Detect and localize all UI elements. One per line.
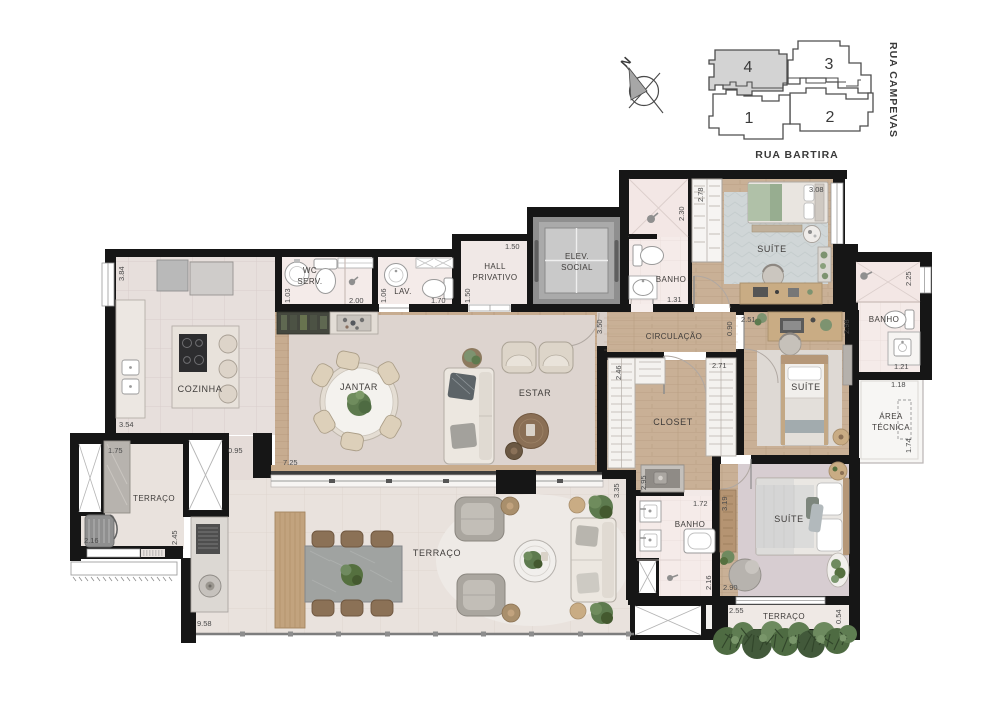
svg-text:2.95: 2.95 xyxy=(639,475,648,490)
svg-text:1.74: 1.74 xyxy=(904,438,913,453)
svg-text:SUÍTE: SUÍTE xyxy=(791,382,821,392)
svg-text:TERRAÇO: TERRAÇO xyxy=(413,548,461,558)
svg-text:RUA CAMPEVAS: RUA CAMPEVAS xyxy=(887,42,899,138)
svg-text:1.06: 1.06 xyxy=(379,288,388,303)
svg-text:2.71: 2.71 xyxy=(712,361,727,370)
svg-text:3.19: 3.19 xyxy=(720,496,729,511)
svg-text:2: 2 xyxy=(826,109,835,126)
svg-text:4: 4 xyxy=(744,59,753,76)
svg-text:3: 3 xyxy=(825,56,834,73)
svg-text:0.90: 0.90 xyxy=(725,321,734,336)
svg-text:2.90: 2.90 xyxy=(723,583,738,592)
svg-text:3.84: 3.84 xyxy=(117,266,126,281)
svg-text:ÁREA: ÁREA xyxy=(879,412,903,421)
svg-text:0.95: 0.95 xyxy=(228,446,243,455)
svg-text:2.45: 2.45 xyxy=(170,530,179,545)
svg-text:CIRCULAÇÃO: CIRCULAÇÃO xyxy=(646,332,702,341)
svg-text:HALL: HALL xyxy=(484,262,506,271)
svg-text:CLOSET: CLOSET xyxy=(653,417,693,427)
svg-text:0.54: 0.54 xyxy=(834,609,843,624)
svg-text:2.98: 2.98 xyxy=(842,319,851,334)
svg-text:SERV.: SERV. xyxy=(297,277,322,286)
svg-text:1.75: 1.75 xyxy=(108,446,123,455)
svg-text:2.16: 2.16 xyxy=(84,536,99,545)
svg-text:SUÍTE: SUÍTE xyxy=(774,514,804,524)
svg-text:1: 1 xyxy=(745,110,754,127)
svg-text:2.25: 2.25 xyxy=(904,271,913,286)
svg-text:2.78: 2.78 xyxy=(696,187,705,202)
svg-text:1.72: 1.72 xyxy=(693,499,708,508)
svg-text:JANTAR: JANTAR xyxy=(340,382,378,392)
svg-text:1.03: 1.03 xyxy=(283,288,292,303)
svg-text:2.46: 2.46 xyxy=(614,365,623,380)
svg-text:1.70: 1.70 xyxy=(431,296,446,305)
svg-text:2.16: 2.16 xyxy=(704,575,713,590)
svg-text:2.00: 2.00 xyxy=(349,296,364,305)
svg-text:TÉCNICA: TÉCNICA xyxy=(872,423,910,432)
svg-text:3.54: 3.54 xyxy=(119,420,134,429)
svg-text:ELEV.: ELEV. xyxy=(565,252,589,261)
svg-text:9.58: 9.58 xyxy=(197,619,212,628)
svg-text:TERRAÇO: TERRAÇO xyxy=(133,494,175,503)
svg-text:TERRAÇO: TERRAÇO xyxy=(763,612,805,621)
svg-text:2.55: 2.55 xyxy=(729,606,744,615)
svg-text:2.30: 2.30 xyxy=(677,206,686,221)
svg-text:WC: WC xyxy=(303,266,317,275)
svg-text:1.31: 1.31 xyxy=(667,295,682,304)
svg-text:SUÍTE: SUÍTE xyxy=(757,244,787,254)
svg-text:COZINHA: COZINHA xyxy=(178,384,223,394)
svg-text:BANHO: BANHO xyxy=(656,275,686,284)
svg-text:BANHO: BANHO xyxy=(869,315,899,324)
svg-text:7.25: 7.25 xyxy=(283,458,298,467)
svg-text:BANHO: BANHO xyxy=(675,520,705,529)
svg-text:1.18: 1.18 xyxy=(891,380,906,389)
svg-text:ESTAR: ESTAR xyxy=(519,388,551,398)
svg-text:3.35: 3.35 xyxy=(612,483,621,498)
svg-text:3.08: 3.08 xyxy=(809,185,824,194)
svg-text:LAV.: LAV. xyxy=(394,287,412,296)
svg-text:2.51: 2.51 xyxy=(741,315,756,324)
svg-text:3.50: 3.50 xyxy=(595,319,604,334)
svg-text:1.21: 1.21 xyxy=(894,362,909,371)
svg-text:RUA BARTIRA: RUA BARTIRA xyxy=(755,149,839,161)
svg-text:PRIVATIVO: PRIVATIVO xyxy=(472,273,517,282)
svg-text:1.50: 1.50 xyxy=(505,242,520,251)
svg-text:1.50: 1.50 xyxy=(463,288,472,303)
svg-text:SOCIAL: SOCIAL xyxy=(561,263,593,272)
